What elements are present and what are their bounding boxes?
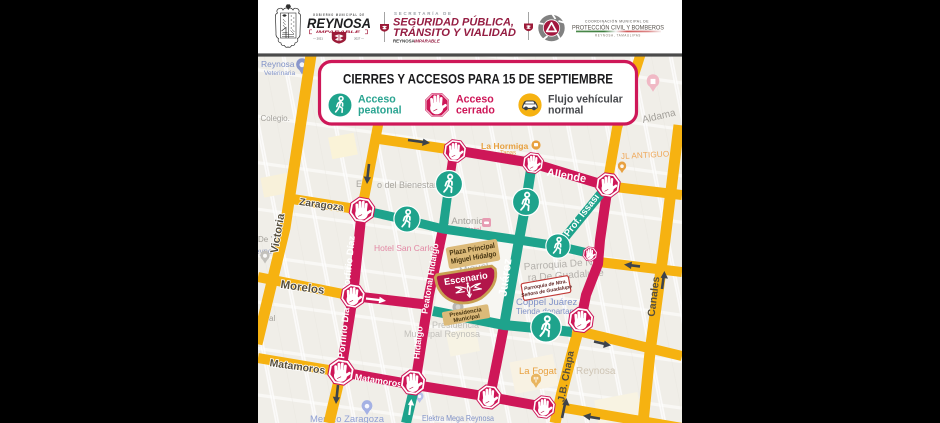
svg-text:Reynosa: Reynosa (576, 366, 616, 377)
svg-text:REYNOSA: REYNOSA (393, 39, 416, 44)
svg-text:COORDINACIÓN MUNICIPAL DE: COORDINACIÓN MUNICIPAL DE (585, 19, 649, 24)
svg-text:peatonal: peatonal (358, 105, 402, 117)
svg-text:cerrado: cerrado (456, 105, 495, 117)
svg-text:— 2021: — 2021 (313, 37, 323, 41)
svg-text:Veterinaria: Veterinaria (264, 70, 295, 77)
svg-text:CIERRES Y ACCESOS PARA 15 DE S: CIERRES Y ACCESOS PARA 15 DE SEPTIEMBRE (343, 72, 613, 87)
svg-text:PROTECCIÓN CIVIL Y BOMBEROS: PROTECCIÓN CIVIL Y BOMBEROS (572, 23, 665, 32)
svg-text:IMPARABLE: IMPARABLE (414, 39, 441, 44)
svg-text:Mer....o Zaragoza: Mer....o Zaragoza (310, 414, 385, 423)
svg-text:al: al (269, 314, 275, 323)
svg-text:REYNOSA: REYNOSA (307, 16, 371, 31)
svg-text:SECRETARÍA DE: SECRETARÍA DE (394, 11, 453, 16)
svg-text:normal: normal (548, 105, 583, 117)
svg-text:n Antonio: n Antonio (444, 216, 484, 227)
svg-text:2027 —: 2027 — (354, 37, 364, 41)
svg-text:al Reynosa: al Reynosa (258, 59, 295, 69)
svg-text:o del Bienestar: o del Bienestar (377, 180, 437, 190)
svg-text:Elektra Mega Reynosa: Elektra Mega Reynosa (422, 413, 494, 423)
svg-text:TRÁNSITO Y VIALIDAD: TRÁNSITO Y VIALIDAD (393, 26, 516, 39)
svg-text:, Colegio.: , Colegio. (258, 114, 290, 123)
svg-text:La Hormiga: La Hormiga (481, 141, 528, 151)
svg-text:REYNOSA, TAMAULIPAS: REYNOSA, TAMAULIPAS (595, 33, 641, 37)
